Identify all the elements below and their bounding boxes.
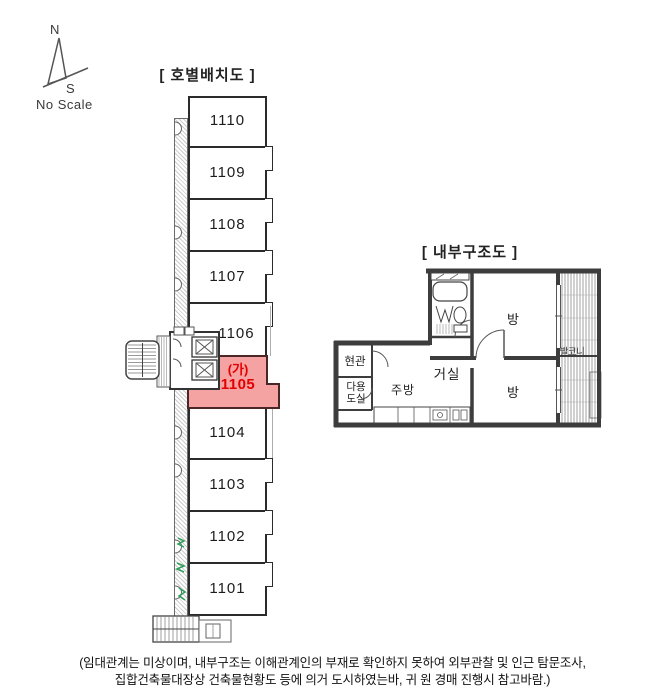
balcony-label: 발코니 bbox=[553, 344, 591, 358]
bathroom-fixtures bbox=[431, 273, 469, 334]
unit-divider bbox=[189, 250, 266, 252]
faint-outline bbox=[270, 306, 271, 356]
utility-line1: 다용 bbox=[341, 381, 371, 393]
compass-south-label: S bbox=[66, 81, 75, 96]
elevator-stair-core bbox=[120, 326, 224, 396]
unit-layout-title: [ 호별배치도 ] bbox=[145, 64, 270, 85]
unit-divider bbox=[189, 510, 266, 512]
faint-outline bbox=[272, 408, 273, 458]
unit-1103: 1103 bbox=[188, 476, 267, 493]
sink bbox=[436, 306, 453, 322]
living-room-label: 거실 bbox=[428, 363, 466, 383]
floor-plan-title: [ 내부구조도 ] bbox=[405, 241, 535, 262]
bathtub bbox=[433, 282, 467, 301]
appraisal-diagram-page: N S No Scale [ 호별배치도 ] bbox=[0, 0, 665, 700]
unit-divider bbox=[189, 562, 266, 564]
unit-1110: 1110 bbox=[188, 112, 267, 129]
room-door-arc bbox=[476, 330, 504, 358]
entrance-label: 현관 bbox=[338, 353, 372, 369]
unit-1102: 1102 bbox=[188, 528, 267, 545]
lower-stair-structure bbox=[148, 610, 240, 648]
no-scale-label: No Scale bbox=[36, 97, 93, 112]
unit-divider bbox=[189, 302, 266, 304]
room-top-label: 방 bbox=[500, 309, 526, 328]
toilet bbox=[454, 307, 466, 323]
kitchen-counter bbox=[374, 407, 470, 423]
unit-1101: 1101 bbox=[188, 580, 267, 597]
unit-1104: 1104 bbox=[188, 424, 267, 441]
kitchen-label: 주방 bbox=[384, 381, 422, 398]
compass-arrow-icon bbox=[32, 32, 96, 92]
room-bottom-label: 방 bbox=[500, 382, 526, 401]
entrance-door-arc bbox=[372, 351, 388, 367]
unit-divider bbox=[189, 198, 266, 200]
utility-line2: 도실 bbox=[341, 393, 371, 405]
balcony-divider-tab bbox=[265, 302, 273, 327]
unit-1109: 1109 bbox=[188, 164, 267, 181]
unit-1107: 1107 bbox=[188, 268, 267, 285]
disclaimer-line2: 집합건축물대장상 건축물현황도 등에 의거 도시하였는바, 귀 원 경매 진행시… bbox=[0, 669, 665, 688]
unit-divider bbox=[189, 146, 266, 148]
utility-room-label: 다용 도실 bbox=[341, 381, 371, 405]
unit-divider bbox=[189, 458, 266, 460]
unit-1108: 1108 bbox=[188, 216, 267, 233]
